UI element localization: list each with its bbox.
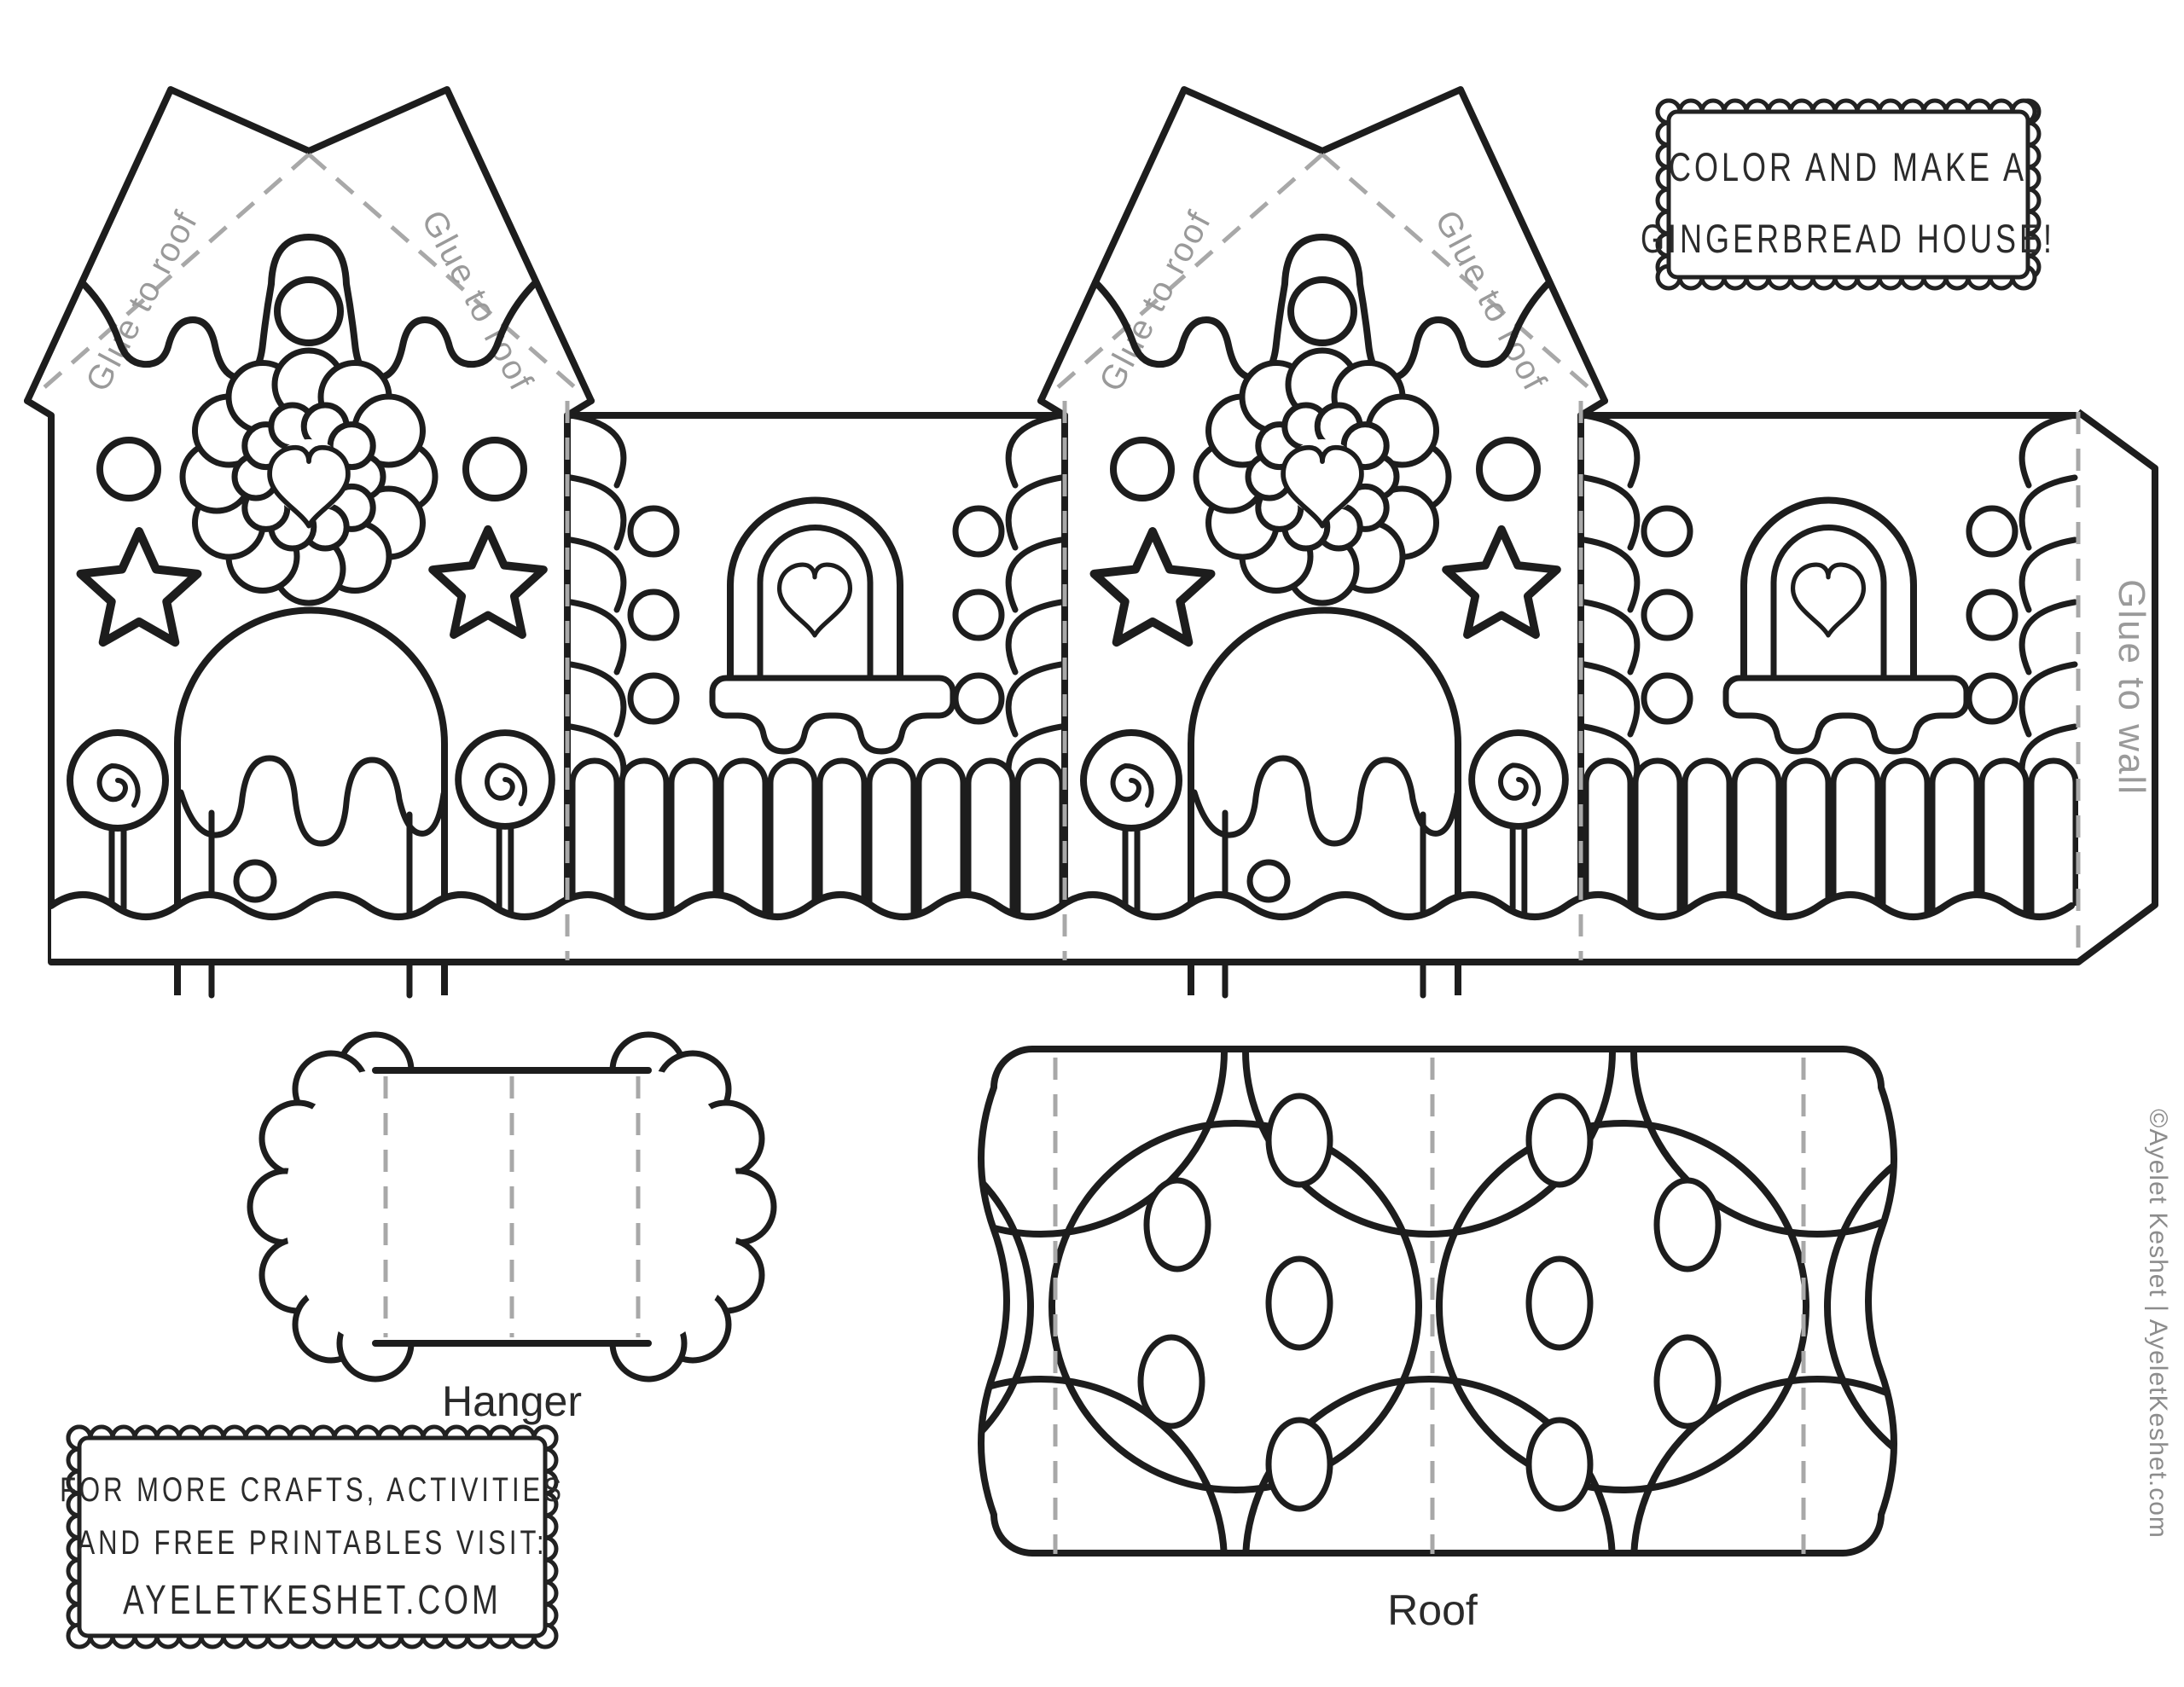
house-front-panel-1 [27,90,591,995]
wall-panel-2 [1581,415,2078,919]
copyright-credit: ©Ayelet Keshet | AyeletKeshet.com [2144,1109,2172,1539]
house-front-panel-2 [1041,90,1605,995]
hanger-piece: Hanger [250,1035,774,1425]
template-drawing: Glue to roof Glue to roof [0,0,2184,1687]
promo-website: AYELETKESHET.COM [123,1577,502,1623]
printable-sheet: Glue to roof Glue to roof [0,0,2184,1687]
glue-to-wall-label: Glue to wall [2111,579,2152,796]
promo-line1: FOR MORE CRAFTS, ACTIVITIES [60,1470,565,1509]
wall-panel-1 [567,415,1065,919]
banner-line2: GINGERBREAD HOUSE! [1641,216,2055,261]
roof-label: Roof [1387,1586,1478,1634]
hanger-label: Hanger [442,1377,582,1425]
banner-line1: COLOR AND MAKE A [1669,144,2027,189]
promo-line2: AND FREE PRINTABLES VISIT: [77,1522,547,1562]
